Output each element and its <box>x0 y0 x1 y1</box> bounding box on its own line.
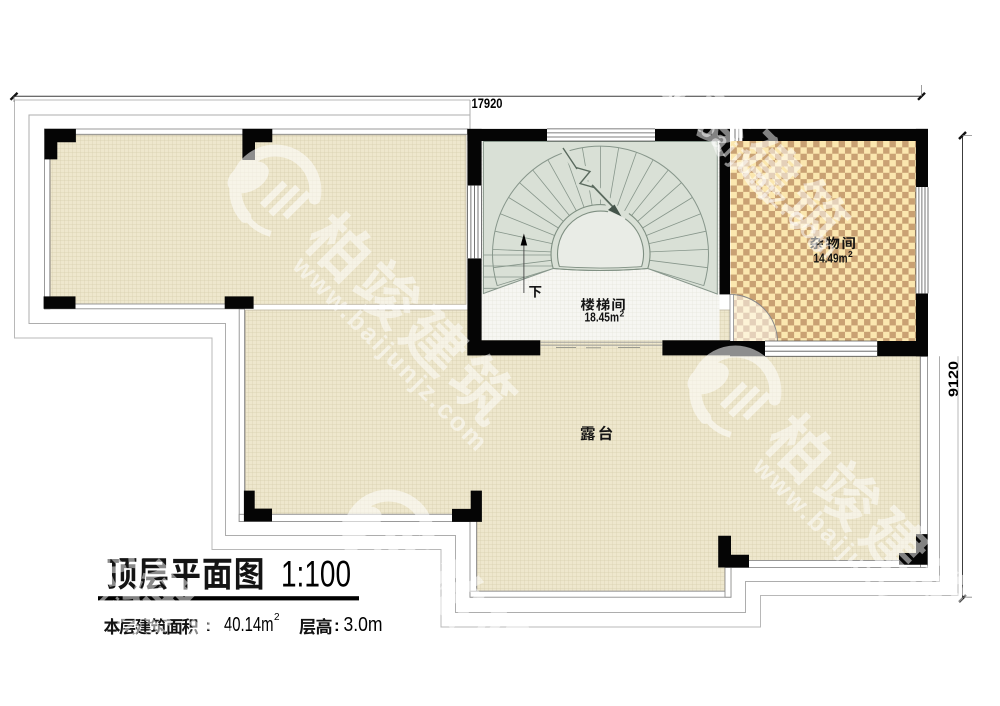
svg-text::: : <box>334 616 340 635</box>
svg-text:1:100: 1:100 <box>281 554 351 595</box>
svg-text:2: 2 <box>620 309 625 319</box>
svg-text:9120: 9120 <box>945 361 961 397</box>
svg-text:18.45m: 18.45m <box>585 310 620 325</box>
svg-text:2: 2 <box>274 612 280 623</box>
svg-text:3.0m: 3.0m <box>344 614 383 636</box>
svg-text:2: 2 <box>848 249 853 259</box>
svg-text:17920: 17920 <box>472 96 503 111</box>
